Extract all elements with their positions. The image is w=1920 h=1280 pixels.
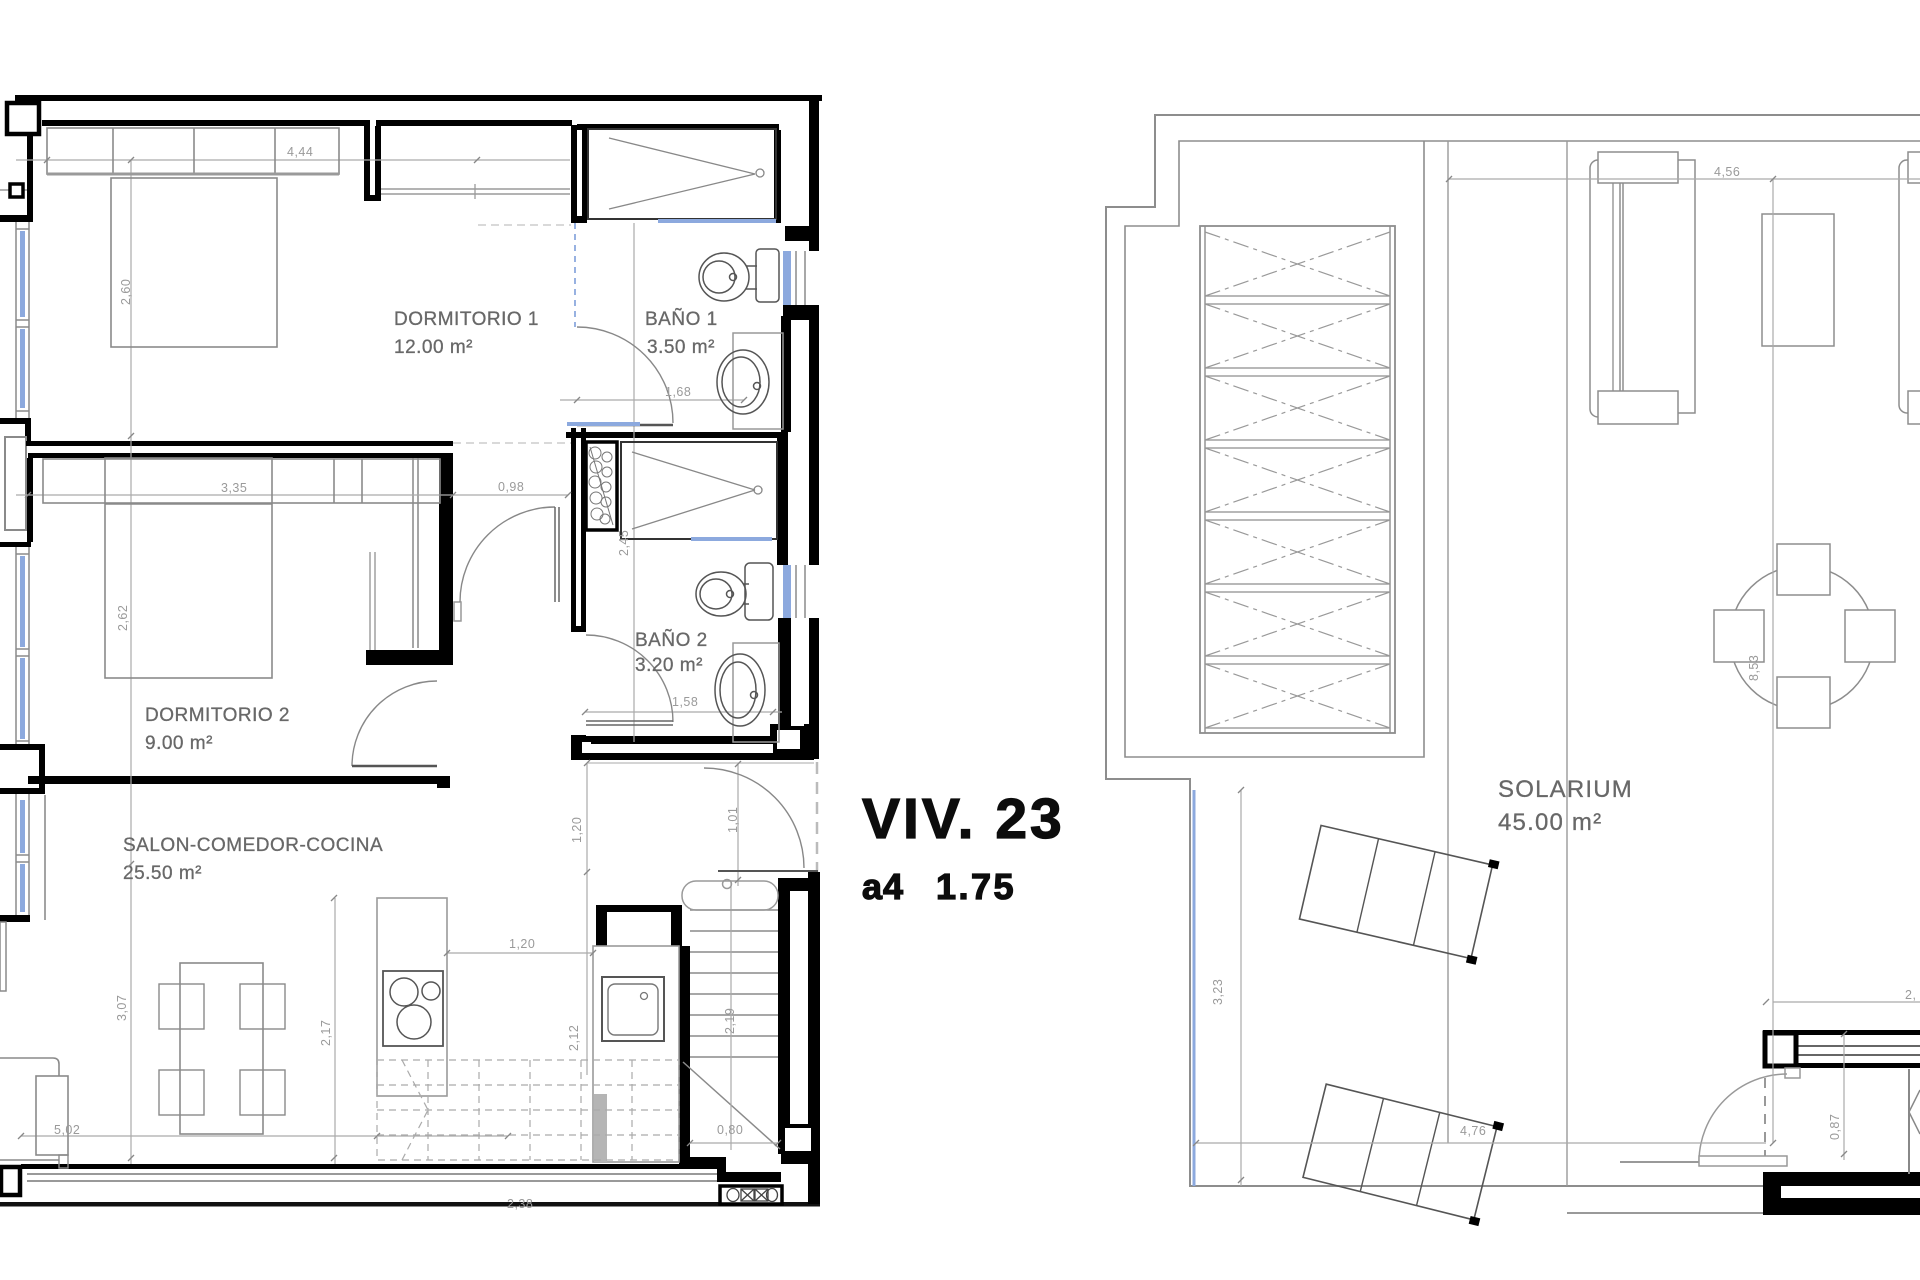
svg-text:VIV. 23: VIV. 23: [862, 787, 1065, 851]
svg-text:5,02: 5,02: [54, 1123, 80, 1137]
svg-text:3,35: 3,35: [221, 481, 247, 495]
svg-text:3.50 m²: 3.50 m²: [647, 337, 715, 358]
svg-text:2,12: 2,12: [567, 1025, 581, 1051]
svg-text:1,68: 1,68: [665, 385, 691, 399]
svg-text:2,38: 2,38: [507, 1197, 533, 1211]
svg-text:25.50 m²: 25.50 m²: [123, 863, 202, 884]
svg-text:3.20 m²: 3.20 m²: [635, 655, 703, 676]
svg-text:2,: 2,: [1905, 988, 1916, 1002]
svg-text:2,62: 2,62: [116, 605, 130, 631]
svg-text:45.00 m²: 45.00 m²: [1498, 809, 1602, 836]
svg-text:1,20: 1,20: [509, 937, 535, 951]
svg-text:2,17: 2,17: [319, 1020, 333, 1046]
svg-text:8,53: 8,53: [1747, 655, 1761, 681]
svg-text:1,20: 1,20: [570, 817, 584, 843]
svg-text:12.00 m²: 12.00 m²: [394, 337, 473, 358]
svg-text:3,07: 3,07: [115, 995, 129, 1021]
svg-text:SALON-COMEDOR-COCINA: SALON-COMEDOR-COCINA: [123, 835, 383, 856]
svg-text:3,23: 3,23: [1211, 979, 1225, 1005]
svg-text:1.75: 1.75: [936, 866, 1016, 907]
svg-text:DORMITORIO 2: DORMITORIO 2: [145, 705, 290, 726]
svg-text:2,60: 2,60: [119, 279, 133, 305]
svg-text:BAÑO 1: BAÑO 1: [645, 308, 718, 330]
svg-text:0,80: 0,80: [717, 1123, 743, 1137]
svg-text:DORMITORIO 1: DORMITORIO 1: [394, 309, 539, 330]
svg-text:1,01: 1,01: [726, 807, 740, 833]
svg-text:1,58: 1,58: [672, 695, 698, 709]
svg-text:2,19: 2,19: [723, 1008, 737, 1034]
svg-text:4,76: 4,76: [1460, 1124, 1486, 1138]
svg-text:0,87: 0,87: [1828, 1114, 1842, 1140]
svg-text:a4: a4: [862, 866, 904, 907]
svg-text:4,56: 4,56: [1714, 165, 1740, 179]
svg-text:0,98: 0,98: [498, 480, 524, 494]
svg-text:SOLARIUM: SOLARIUM: [1498, 776, 1633, 803]
svg-text:9.00 m²: 9.00 m²: [145, 733, 213, 754]
svg-text:BAÑO 2: BAÑO 2: [635, 629, 708, 651]
svg-text:2,45: 2,45: [617, 530, 631, 556]
svg-text:4,44: 4,44: [287, 145, 313, 159]
